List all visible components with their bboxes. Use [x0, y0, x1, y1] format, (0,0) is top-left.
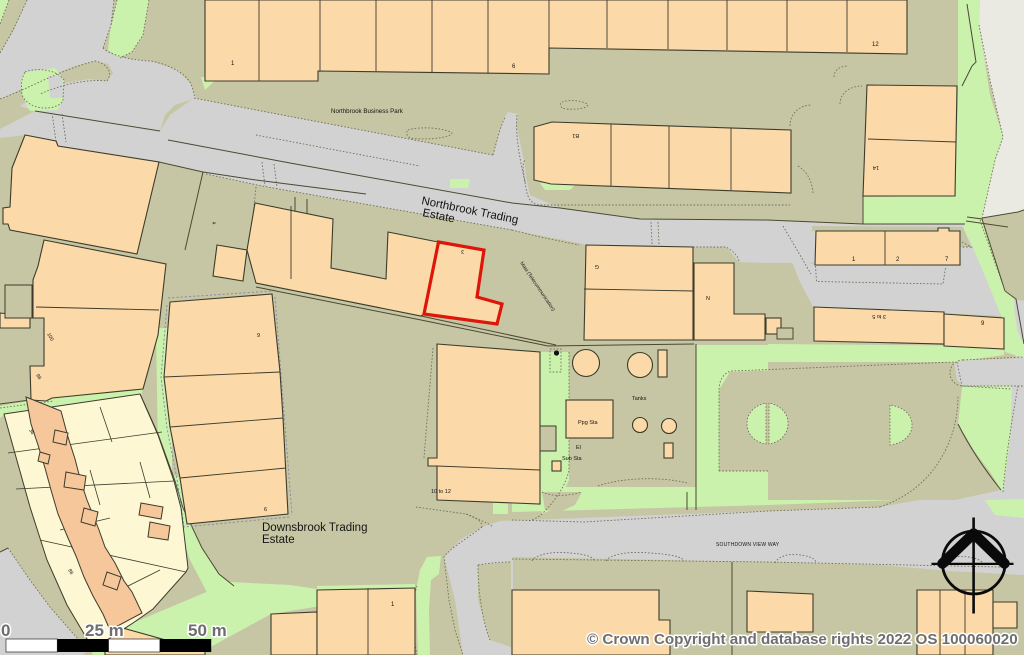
svg-text:Sub Sta: Sub Sta: [562, 456, 583, 462]
svg-text:Tanks: Tanks: [632, 396, 647, 402]
svg-text:14: 14: [873, 164, 879, 170]
svg-text:3 to 5: 3 to 5: [872, 313, 886, 319]
svg-text:G: G: [595, 263, 599, 269]
svg-text:B1: B1: [572, 132, 579, 138]
svg-text:Ppg Sta: Ppg Sta: [578, 420, 599, 426]
svg-text:© Crown Copyright and database: © Crown Copyright and database rights 20…: [587, 631, 1018, 648]
svg-text:N: N: [706, 294, 710, 300]
svg-text:Downsbrook Trading: Downsbrook Trading: [262, 522, 367, 534]
svg-text:25 m: 25 m: [85, 621, 124, 640]
svg-text:Estate: Estate: [262, 534, 295, 546]
svg-text:9: 9: [257, 333, 260, 339]
svg-text:50 m: 50 m: [188, 621, 227, 640]
svg-text:6: 6: [264, 507, 267, 513]
svg-text:El: El: [576, 445, 581, 451]
svg-text:SOUTHDOWN VIEW WAY: SOUTHDOWN VIEW WAY: [716, 542, 780, 548]
svg-text:3: 3: [461, 248, 464, 254]
svg-text:Northbrook Business Park: Northbrook Business Park: [331, 108, 404, 115]
svg-text:0: 0: [1, 621, 10, 640]
svg-text:10 to 12: 10 to 12: [431, 489, 451, 495]
svg-text:12: 12: [872, 42, 879, 48]
